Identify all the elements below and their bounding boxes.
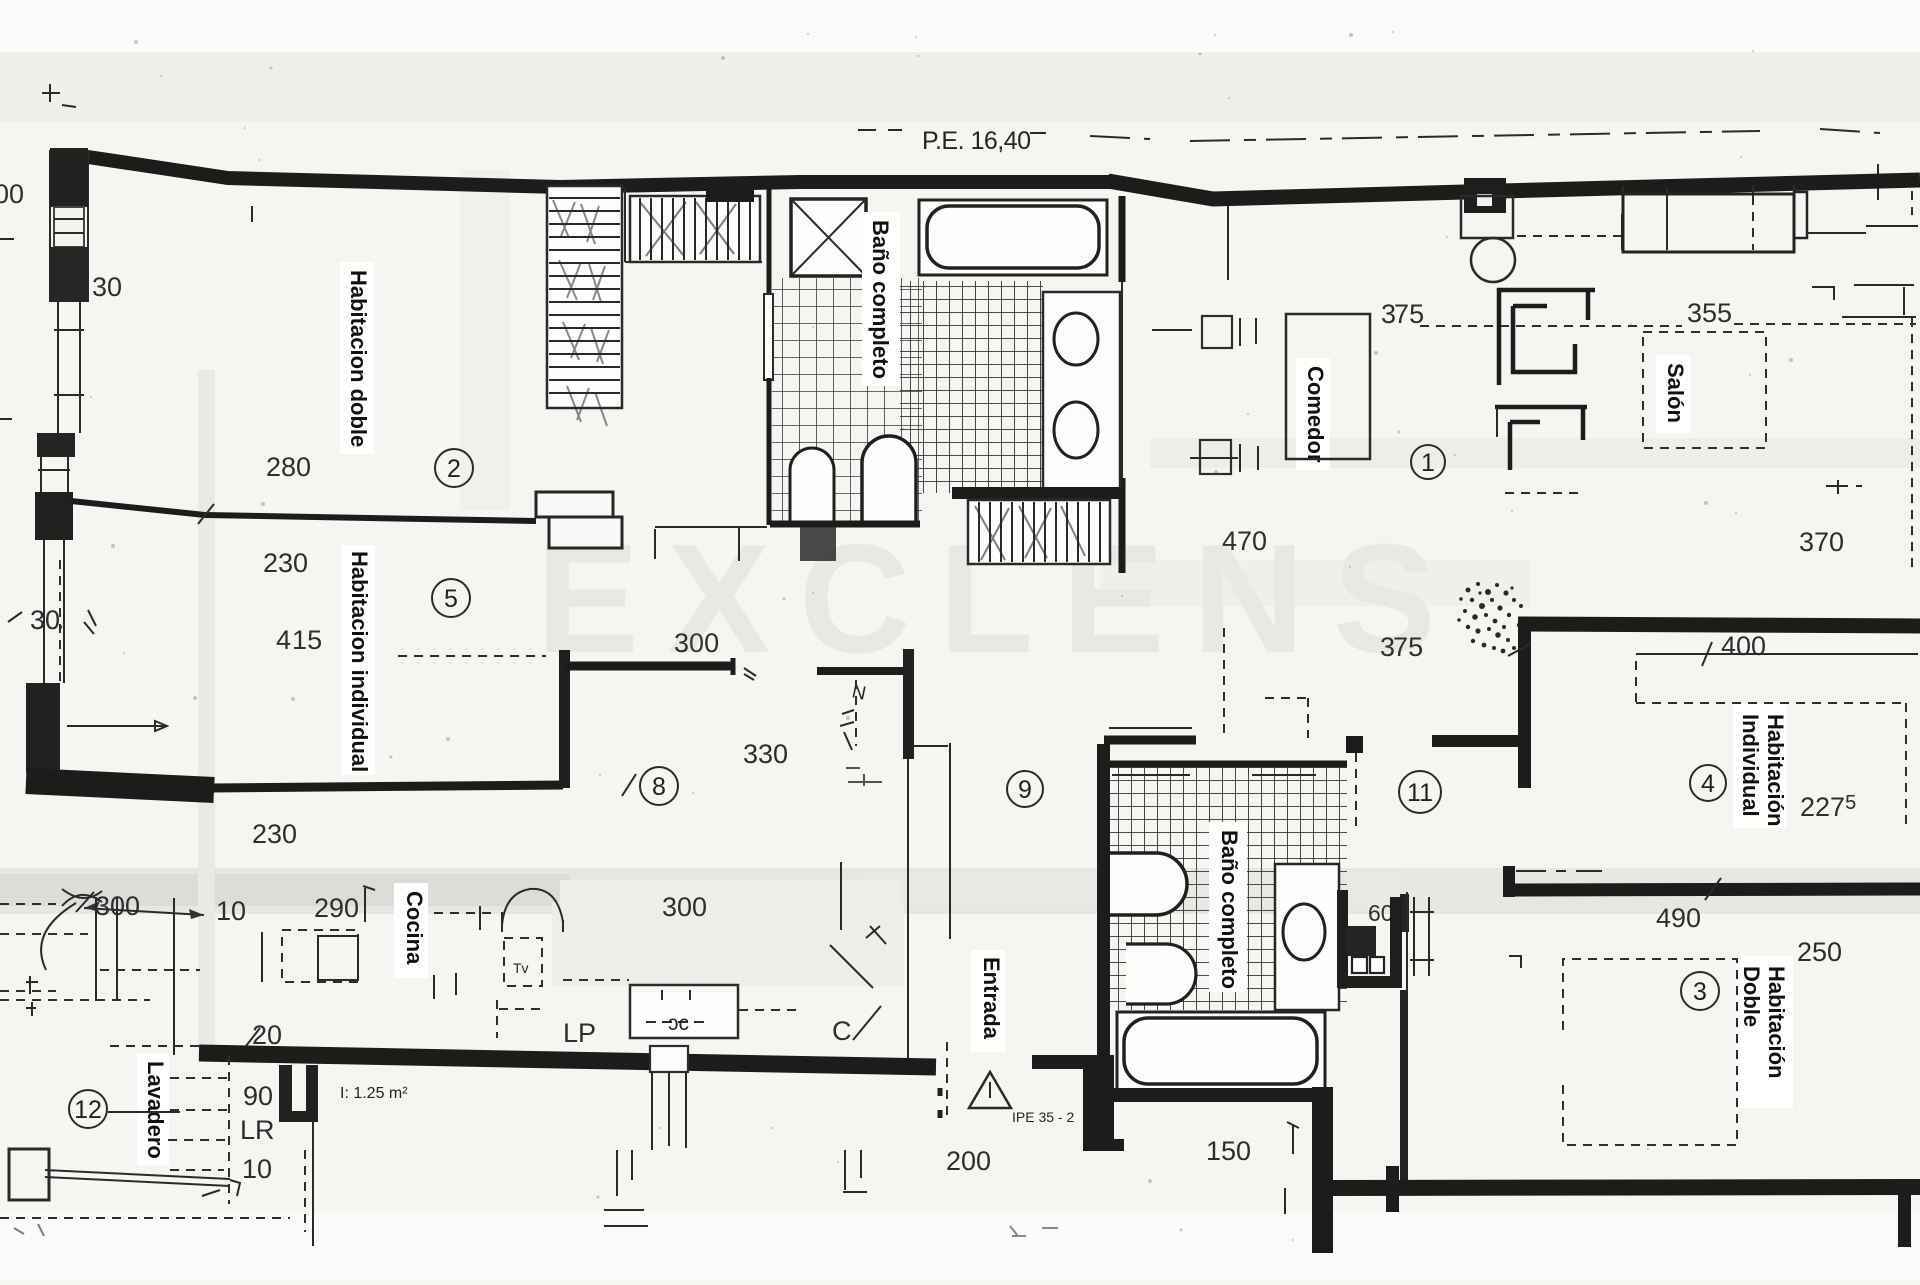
svg-text:LP: LP (563, 1018, 596, 1048)
svg-text:490: 490 (1656, 903, 1701, 933)
svg-text:Baño completo: Baño completo (868, 220, 893, 379)
svg-text:3: 3 (1693, 978, 1707, 1006)
svg-text:Lavadero: Lavadero (143, 1061, 168, 1159)
svg-text:300: 300 (662, 892, 707, 922)
svg-text:4: 4 (1701, 770, 1715, 798)
svg-text:Cocina: Cocina (402, 891, 427, 965)
svg-text:Tv: Tv (513, 960, 529, 976)
svg-text:Habitacion doble: Habitacion doble (346, 270, 371, 447)
svg-text:60: 60 (1368, 900, 1394, 926)
svg-text:20: 20 (252, 1020, 282, 1050)
svg-text:Doble: Doble (1739, 966, 1764, 1027)
svg-text:1: 1 (1421, 449, 1435, 477)
svg-text:LR: LR (240, 1115, 275, 1145)
svg-text:2: 2 (447, 455, 461, 483)
svg-text:400: 400 (1721, 631, 1766, 661)
svg-text:30: 30 (92, 272, 122, 302)
svg-text:Individual: Individual (1738, 714, 1763, 817)
svg-text:Habitación: Habitación (1763, 714, 1788, 826)
svg-text:Habitacion individual: Habitacion individual (347, 551, 372, 772)
svg-text:I: 1.25 m²: I: 1.25 m² (340, 1085, 408, 1102)
svg-text:Salón: Salón (1663, 363, 1688, 423)
svg-text:355: 355 (1687, 298, 1732, 328)
svg-text:90: 90 (243, 1081, 273, 1111)
svg-text:00: 00 (0, 179, 24, 209)
svg-text:10: 10 (242, 1154, 272, 1184)
svg-text:200: 200 (946, 1146, 991, 1176)
svg-text:IPE 35 - 2: IPE 35 - 2 (1012, 1109, 1074, 1125)
svg-text:12: 12 (74, 1096, 102, 1124)
svg-text:11: 11 (1407, 779, 1433, 807)
svg-text:300: 300 (674, 628, 719, 658)
svg-text:375: 375 (1381, 299, 1424, 329)
svg-text:280: 280 (266, 452, 311, 482)
svg-text:230: 230 (252, 819, 297, 849)
svg-text:150: 150 (1206, 1136, 1251, 1166)
svg-text:Baño completo: Baño completo (1217, 830, 1242, 989)
svg-text:ɔc: ɔc (668, 1012, 689, 1035)
svg-text:Comedor: Comedor (1303, 366, 1328, 463)
svg-text:375: 375 (1380, 632, 1423, 662)
svg-text:C: C (832, 1016, 852, 1046)
svg-text:470: 470 (1222, 526, 1267, 556)
svg-text:290: 290 (314, 893, 359, 923)
svg-text:P.E. 16,40: P.E. 16,40 (922, 127, 1031, 155)
svg-text:Habitación: Habitación (1764, 966, 1789, 1078)
svg-text:370: 370 (1799, 527, 1844, 557)
svg-text:415: 415 (276, 625, 322, 655)
svg-text:250: 250 (1797, 937, 1842, 967)
svg-text:330: 330 (743, 739, 788, 769)
svg-text:5: 5 (444, 585, 458, 613)
svg-text:230: 230 (263, 548, 308, 578)
svg-text:8: 8 (652, 773, 666, 801)
svg-text:10: 10 (216, 896, 246, 926)
svg-text:Entrada: Entrada (979, 957, 1004, 1040)
svg-text:9: 9 (1018, 776, 1032, 804)
